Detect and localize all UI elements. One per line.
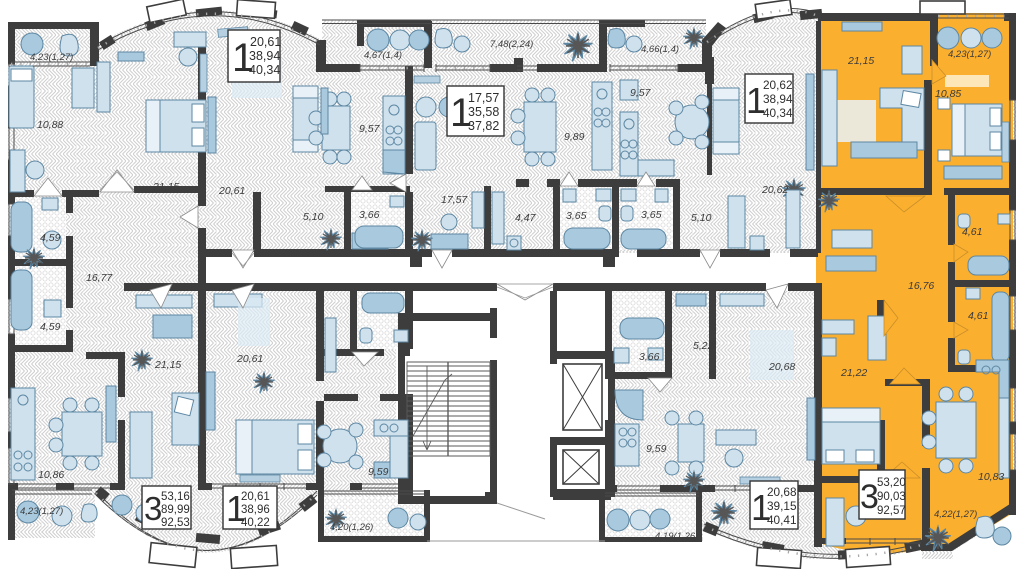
svg-text:38,94: 38,94 [249, 49, 280, 63]
svg-text:3: 3 [144, 490, 162, 527]
svg-text:92,53: 92,53 [161, 517, 190, 529]
svg-text:9,89: 9,89 [564, 131, 585, 143]
svg-text:4,20(1,26): 4,20(1,26) [330, 522, 373, 533]
svg-text:3,66: 3,66 [639, 351, 660, 363]
svg-text:90,03: 90,03 [877, 491, 906, 503]
svg-text:21,15: 21,15 [154, 359, 181, 371]
svg-text:4,23(1,27): 4,23(1,27) [948, 49, 991, 60]
svg-text:20,62: 20,62 [763, 78, 793, 92]
svg-text:4,23(1,27): 4,23(1,27) [20, 506, 63, 517]
svg-text:4,59: 4,59 [40, 321, 61, 333]
svg-text:4,61: 4,61 [962, 226, 982, 238]
svg-text:53,16: 53,16 [161, 491, 190, 503]
svg-text:4,23(1,27): 4,23(1,27) [30, 52, 73, 63]
svg-text:9,59: 9,59 [368, 466, 389, 478]
svg-text:9,59: 9,59 [646, 443, 667, 455]
svg-text:4,59: 4,59 [40, 232, 61, 244]
svg-text:20,61: 20,61 [236, 353, 263, 365]
svg-text:20,61: 20,61 [218, 185, 245, 197]
svg-text:3,65: 3,65 [641, 209, 662, 221]
svg-text:21,15: 21,15 [152, 181, 179, 193]
svg-text:5,22: 5,22 [693, 340, 714, 352]
svg-text:9,57: 9,57 [359, 123, 381, 135]
svg-text:53,20: 53,20 [877, 477, 906, 489]
svg-text:5,10: 5,10 [691, 212, 712, 224]
svg-text:37,82: 37,82 [468, 119, 499, 133]
svg-text:16,76: 16,76 [908, 280, 934, 292]
svg-text:39,15: 39,15 [767, 499, 797, 513]
svg-text:4,47: 4,47 [515, 212, 537, 224]
svg-text:10,83: 10,83 [978, 471, 1004, 483]
svg-text:3,66: 3,66 [359, 209, 380, 221]
svg-text:38,96: 38,96 [241, 504, 270, 516]
svg-text:4,22(1,27): 4,22(1,27) [934, 509, 977, 520]
svg-text:20,61: 20,61 [250, 35, 281, 49]
svg-text:10,86: 10,86 [38, 469, 64, 481]
svg-text:9,57: 9,57 [630, 87, 652, 99]
svg-text:7,48(2,24): 7,48(2,24) [490, 39, 533, 50]
svg-text:40,34: 40,34 [249, 63, 280, 77]
svg-text:4,67(1,4): 4,67(1,4) [364, 50, 402, 61]
svg-text:21,22: 21,22 [840, 367, 867, 379]
svg-text:92,57: 92,57 [877, 505, 906, 517]
svg-text:40,41: 40,41 [767, 513, 797, 527]
svg-text:20,61: 20,61 [241, 491, 270, 503]
svg-text:4,66(1,4): 4,66(1,4) [641, 44, 679, 55]
svg-text:3,65: 3,65 [566, 210, 587, 222]
svg-text:4,61: 4,61 [968, 310, 988, 322]
svg-text:17,57: 17,57 [441, 194, 468, 206]
svg-text:5,10: 5,10 [303, 211, 324, 223]
svg-text:89,99: 89,99 [161, 504, 190, 516]
svg-text:17,57: 17,57 [468, 91, 499, 105]
svg-text:20,68: 20,68 [768, 361, 795, 373]
svg-text:4,19(1,26): 4,19(1,26) [655, 531, 698, 542]
svg-text:10,85: 10,85 [935, 88, 961, 100]
svg-text:35,58: 35,58 [468, 105, 499, 119]
svg-text:40,34: 40,34 [763, 106, 793, 120]
svg-text:21,15: 21,15 [847, 55, 874, 67]
svg-text:16,77: 16,77 [86, 272, 113, 284]
svg-text:20,62: 20,62 [761, 184, 788, 196]
svg-text:20,68: 20,68 [767, 485, 797, 499]
svg-text:40,22: 40,22 [241, 517, 270, 529]
svg-text:38,94: 38,94 [763, 92, 793, 106]
svg-text:10,88: 10,88 [37, 119, 63, 131]
